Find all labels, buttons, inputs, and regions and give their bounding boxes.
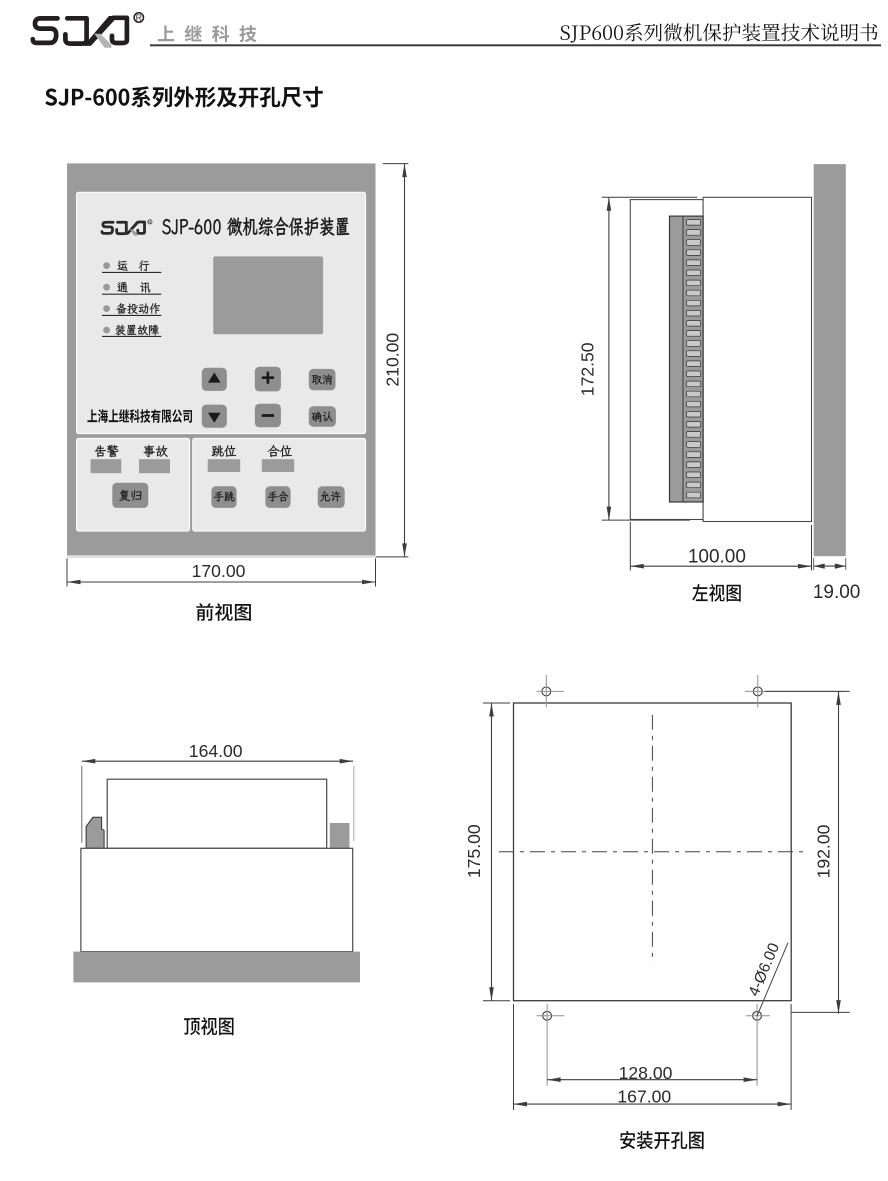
svg-text:R: R <box>136 13 142 23</box>
svg-text:192.00: 192.00 <box>814 824 834 878</box>
svg-text:172.50: 172.50 <box>577 342 597 396</box>
svg-text:210.00: 210.00 <box>382 333 402 387</box>
svg-text:19.00: 19.00 <box>813 582 861 603</box>
svg-text:R: R <box>149 220 152 224</box>
svg-text:128.00: 128.00 <box>619 1063 673 1083</box>
svg-text:170.00: 170.00 <box>192 561 246 581</box>
svg-text:167.00: 167.00 <box>617 1087 671 1107</box>
svg-text:100.00: 100.00 <box>688 547 746 568</box>
svg-text:164.00: 164.00 <box>189 741 243 761</box>
svg-text:175.00: 175.00 <box>464 824 484 878</box>
